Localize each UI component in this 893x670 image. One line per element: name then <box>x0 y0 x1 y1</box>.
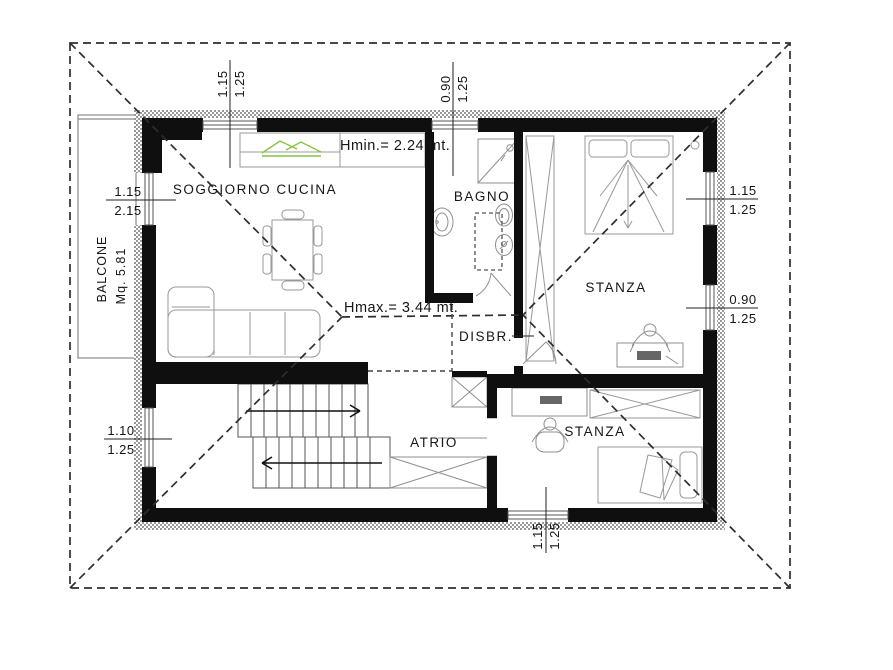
dim-stanza-nord2-h: 1.25 <box>729 311 756 326</box>
staircase <box>238 384 390 488</box>
floor-plan-page: 1.15 1.25 0.90 1.25 1.15 2.15 1.10 1.25 … <box>0 0 893 670</box>
dim-stanza-sud-w: 1.15 <box>530 522 545 549</box>
dim-stanza-nord1-h: 1.25 <box>729 202 756 217</box>
sofa-icon <box>168 287 320 357</box>
room-label-disbr: DISBR. <box>459 329 513 344</box>
bed-single-icon <box>598 447 702 503</box>
dim-scala-window-w: 1.10 <box>107 423 134 438</box>
bagno-door-swing <box>476 273 511 296</box>
cooktop-icon <box>262 141 321 156</box>
room-label-balcone: BALCONE <box>95 236 109 303</box>
dim-top-bagno-h: 1.25 <box>455 75 470 102</box>
dim-stanza-nord2-w: 0.90 <box>729 292 756 307</box>
desk-chair-icon <box>617 324 683 367</box>
room-label-bagno: BAGNO <box>454 189 510 204</box>
dim-top-bagno-w: 0.90 <box>438 75 453 102</box>
dim-stanza-nord1-w: 1.15 <box>729 183 756 198</box>
dining-table-icon <box>263 210 322 290</box>
dim-stanza-sud-h: 1.25 <box>547 522 562 549</box>
stair-arrow-down <box>262 457 382 469</box>
bed-double-icon <box>585 136 699 234</box>
wardrobe-icon <box>526 136 554 361</box>
floor-plan-drawing: 1.15 1.25 0.90 1.25 1.15 2.15 1.10 1.25 … <box>0 0 893 670</box>
wardrobe-icon-2 <box>590 390 700 418</box>
dim-balcone-door-h: 2.15 <box>114 203 141 218</box>
hmax-annotation: Hmax.= 3.44 mt. <box>344 300 458 316</box>
shower-icon <box>478 139 518 183</box>
toilet-icon <box>496 204 513 226</box>
room-label-soggiorno: SOGGIORNO CUCINA <box>173 182 337 197</box>
closet-shaft <box>452 377 487 407</box>
stair-landing <box>390 457 487 488</box>
desk-chair-icon-2 <box>512 388 587 452</box>
bagno-planned-fixture <box>475 213 502 270</box>
dim-top-soggiorno-w: 1.15 <box>215 70 230 97</box>
room-label-stanza-nord: STANZA <box>585 280 646 295</box>
bidet-icon <box>496 235 513 256</box>
room-label-balcone-area: Mq. 5.81 <box>114 248 128 305</box>
sink-icon <box>431 208 453 236</box>
hmin-annotation: Hmin.= 2.24 mt. <box>340 138 450 154</box>
dim-balcone-door-w: 1.15 <box>114 184 141 199</box>
dim-top-soggiorno-h: 1.25 <box>232 70 247 97</box>
room-label-atrio: ATRIO <box>410 435 458 450</box>
room-label-stanza-sud: STANZA <box>564 424 625 439</box>
dim-scala-window-h: 1.25 <box>107 442 134 457</box>
